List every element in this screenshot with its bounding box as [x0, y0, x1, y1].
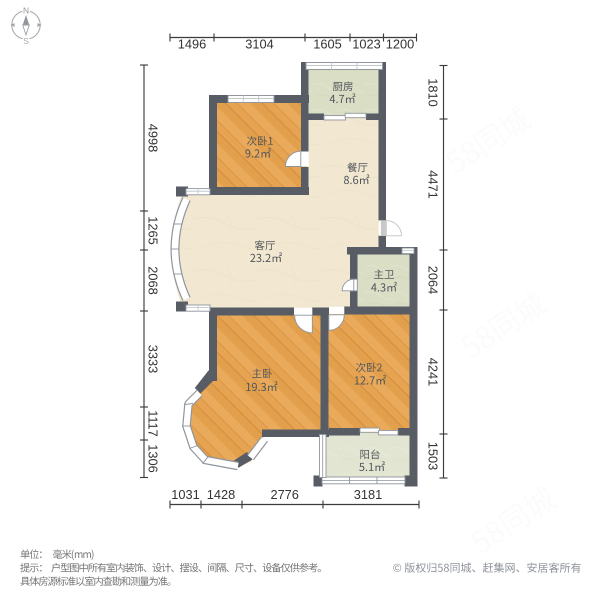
svg-text:1265: 1265 — [146, 216, 161, 244]
svg-text:4241: 4241 — [426, 358, 441, 386]
svg-text:1200: 1200 — [386, 37, 414, 52]
svg-text:1023: 1023 — [352, 37, 380, 52]
svg-text:1503: 1503 — [426, 442, 441, 470]
svg-text:1031: 1031 — [171, 487, 199, 502]
svg-text:3333: 3333 — [146, 345, 161, 373]
svg-text:1117: 1117 — [146, 410, 161, 437]
svg-text:1605: 1605 — [313, 37, 341, 52]
svg-text:1428: 1428 — [207, 487, 235, 502]
svg-text:4998: 4998 — [146, 124, 161, 152]
svg-text:1306: 1306 — [146, 444, 161, 472]
svg-text:2064: 2064 — [426, 266, 441, 294]
svg-text:3181: 3181 — [354, 487, 382, 502]
svg-text:S: S — [23, 36, 29, 46]
svg-text:2068: 2068 — [146, 266, 161, 294]
svg-text:2776: 2776 — [270, 487, 298, 502]
svg-text:4471: 4471 — [426, 170, 441, 198]
svg-text:N: N — [23, 6, 29, 16]
svg-text:1810: 1810 — [426, 78, 441, 106]
svg-text:3104: 3104 — [245, 37, 273, 52]
svg-text:1496: 1496 — [178, 37, 206, 52]
